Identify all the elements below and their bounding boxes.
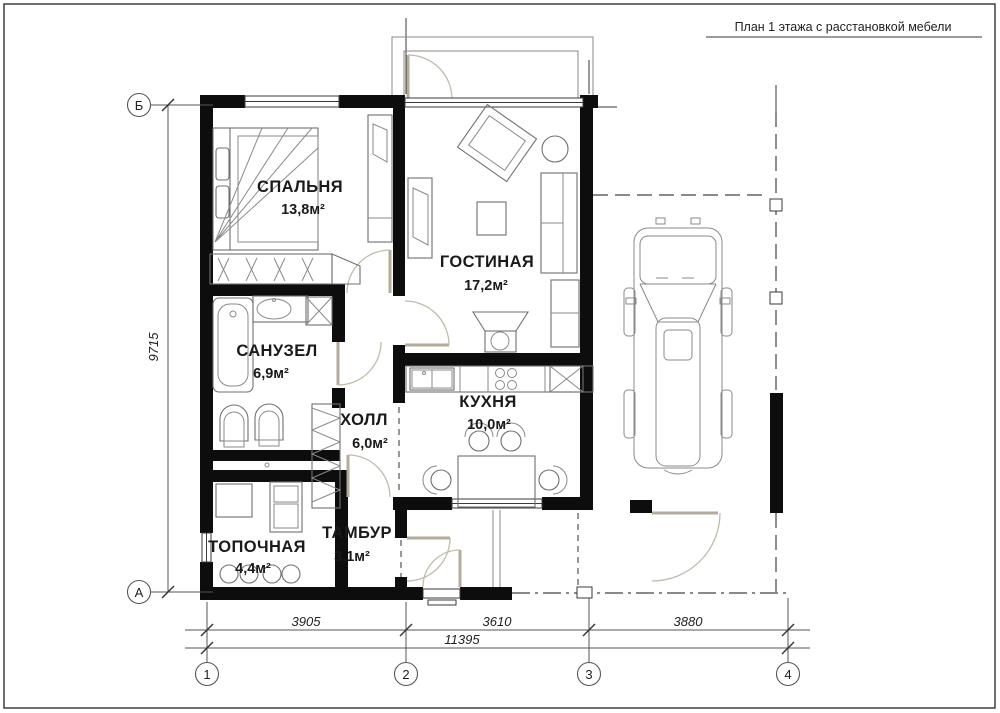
dim-seg-3: 3880 — [674, 614, 704, 629]
corridor-dot — [265, 463, 269, 467]
wall-bedroom-bottom — [200, 284, 345, 296]
toilet-2 — [255, 404, 283, 446]
wall-top-left — [200, 95, 245, 108]
axis-number-1: 1 — [203, 667, 210, 682]
porch-door-arc — [652, 513, 720, 581]
stove-burners — [496, 369, 517, 390]
label-hall: ХОЛЛ — [340, 411, 388, 429]
room-labels: СПАЛЬНЯ 13,8м² ГОСТИНАЯ 17,2м² САНУЗЕЛ 6… — [208, 178, 534, 577]
wall-kitchen-top — [405, 353, 593, 366]
hall-tambour-door-arc — [348, 455, 390, 497]
wall-right — [580, 95, 593, 510]
label-living: ГОСТИНАЯ — [440, 253, 534, 271]
dimension-bottom: 3905 3610 3880 11395 1 2 3 4 — [185, 598, 810, 686]
area-hall: 6,0м² — [352, 436, 388, 452]
area-boiler: 4,4м² — [235, 561, 271, 577]
terrace — [392, 37, 593, 100]
bedroom-door-arc — [347, 250, 390, 293]
entrance-door-arc — [423, 550, 460, 587]
dining-chairs — [423, 423, 567, 494]
living-tv-unit — [408, 178, 432, 258]
label-bath: САНУЗЕЛ — [236, 342, 317, 360]
label-boiler: ТОПОЧНАЯ — [208, 538, 306, 556]
round-side-table — [542, 136, 568, 162]
toilet-1 — [220, 405, 248, 447]
washing-machine — [306, 297, 332, 325]
axis-number-3: 3 — [585, 667, 592, 682]
wall-tambour-right-lower — [395, 577, 407, 587]
area-tambour: 3,1м² — [334, 549, 370, 565]
area-bedroom: 13,8м² — [281, 202, 325, 218]
tambour-side-door-arc — [407, 538, 450, 581]
axis-letter-bottom: А — [135, 585, 144, 600]
wall-bottom-right — [460, 587, 512, 600]
wall-bath-right-lower — [332, 388, 345, 408]
entrance-threshold — [423, 589, 460, 598]
bedroom-tv-unit — [368, 115, 392, 242]
fence-wall — [770, 393, 783, 513]
fireplace — [473, 312, 528, 352]
terrace-door-arc — [408, 55, 452, 99]
living-door-arc — [405, 301, 449, 345]
wall-tambour-right-upper — [395, 510, 407, 538]
bedroom-wardrobe — [210, 254, 360, 284]
washbasin — [253, 296, 308, 322]
area-living: 17,2м² — [464, 278, 508, 294]
coffee-table — [477, 202, 506, 235]
axis-letter-top: Б — [135, 98, 144, 113]
dim-total: 11395 — [444, 632, 480, 647]
car-top-view — [624, 218, 732, 474]
wall-top-mid — [339, 95, 405, 108]
dim-left-height: 9715 — [146, 332, 161, 362]
dim-seg-2: 3610 — [483, 614, 513, 629]
wall-kitchen-bottom-right — [542, 497, 593, 510]
wall-hall-living — [393, 345, 405, 403]
sheet-title: План 1 этажа с расстановкой мебели — [735, 20, 952, 34]
kitchen-sink — [410, 368, 454, 390]
label-bedroom: СПАЛЬНЯ — [257, 178, 343, 196]
entrance-step — [428, 600, 456, 605]
sofa — [541, 173, 577, 273]
kitchen-cabinet-x — [550, 366, 583, 392]
wall-bottom-left — [200, 587, 423, 600]
wall-bedroom-living — [393, 108, 405, 296]
wall-bath-right-upper — [332, 296, 345, 342]
wall-left-upper — [200, 95, 213, 533]
porch-post — [630, 500, 652, 513]
wall-kitchen-bottom-left — [405, 497, 452, 510]
floor-plan-svg: План 1 этажа с расстановкой мебели — [0, 0, 1000, 713]
axis-number-4: 4 — [784, 667, 791, 682]
area-kitchen: 10,0м² — [467, 417, 511, 433]
living-console — [551, 280, 579, 347]
label-kitchen: КУХНЯ — [459, 393, 517, 411]
dim-seg-1: 3905 — [292, 614, 322, 629]
armchair — [458, 104, 537, 181]
label-tambour: ТАМБУР — [322, 524, 392, 542]
drawing-sheet: План 1 этажа с расстановкой мебели — [0, 0, 1000, 713]
wall-bath-bottom — [200, 450, 340, 461]
post-hall-kitchen — [393, 497, 407, 510]
area-bath: 6,9м² — [253, 366, 289, 382]
bath-door-arc — [338, 342, 381, 385]
axis-number-2: 2 — [402, 667, 409, 682]
